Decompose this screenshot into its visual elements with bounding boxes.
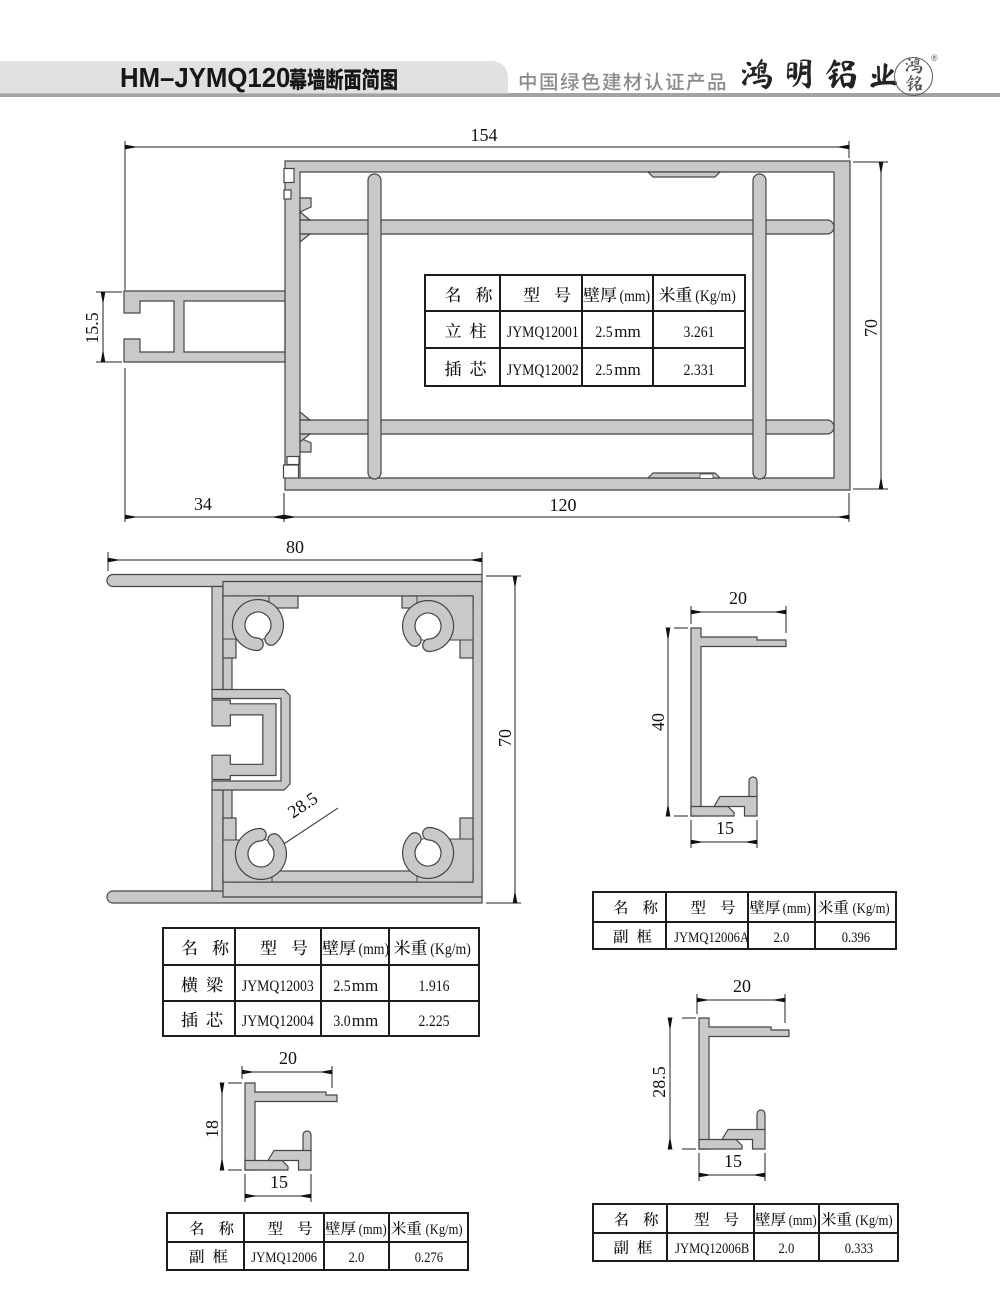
svg-text:15.5: 15.5 [82, 312, 102, 344]
svg-text:20: 20 [279, 1048, 297, 1068]
svg-text:70: 70 [861, 319, 881, 337]
svg-text:40: 40 [648, 713, 668, 731]
svg-text:120: 120 [550, 495, 577, 515]
svg-text:15: 15 [716, 818, 734, 838]
svg-text:20: 20 [729, 588, 747, 608]
svg-text:34: 34 [194, 494, 212, 514]
svg-text:70: 70 [495, 729, 515, 747]
svg-text:28.5: 28.5 [649, 1066, 669, 1098]
svg-text:80: 80 [286, 537, 304, 557]
svg-text:20: 20 [733, 976, 751, 996]
svg-text:154: 154 [471, 125, 498, 145]
svg-text:15: 15 [270, 1172, 288, 1192]
svg-text:18: 18 [202, 1120, 222, 1138]
svg-text:28.5: 28.5 [284, 788, 321, 822]
svg-text:15: 15 [724, 1151, 742, 1171]
